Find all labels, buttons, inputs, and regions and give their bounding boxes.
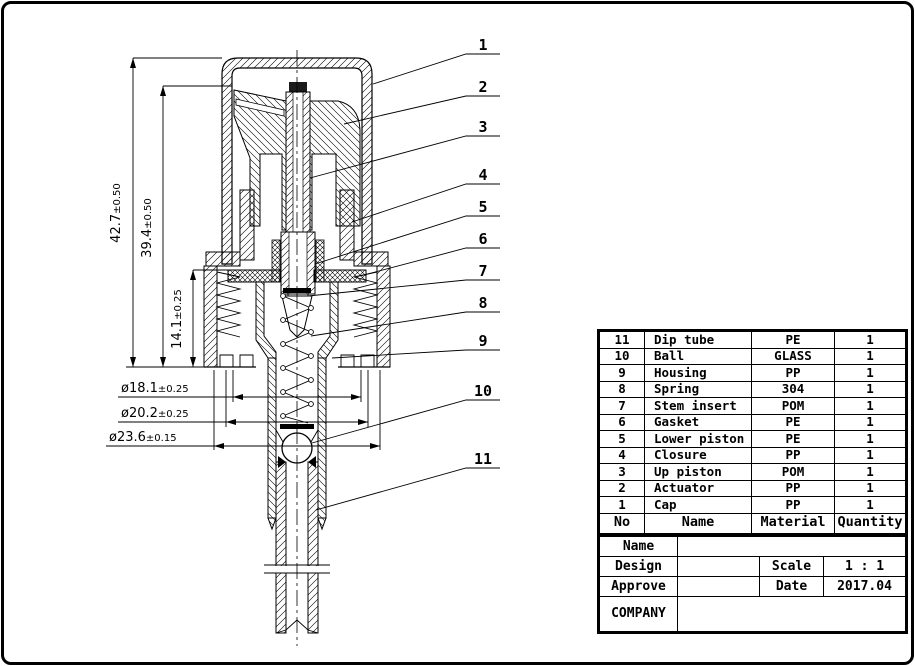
name-value: [678, 535, 907, 556]
parts-table: 11Dip tubePE1 10BallGLASS1 9HousingPP1 8…: [597, 329, 908, 536]
blueprint-page: 42.7±0.50 39.4±0.50 14.1±0.25 ø18.1±0.25: [0, 0, 915, 666]
callout-3: 3: [478, 118, 487, 136]
table-row: 2ActuatorPP1: [599, 480, 907, 497]
stem-plug: [289, 82, 307, 92]
callout-11: 11: [474, 450, 492, 468]
design-label: Design: [599, 556, 678, 576]
title-block-company-row: COMPANY: [599, 596, 907, 632]
title-block-approve-row: Approve Date 2017.04: [599, 576, 907, 596]
table-row: 4ClosurePP1: [599, 447, 907, 464]
title-block: Name Design Scale 1 : 1 Approve Date 201…: [597, 534, 908, 634]
approve-label: Approve: [599, 576, 678, 596]
name-label: Name: [599, 535, 678, 556]
table-row: 9HousingPP1: [599, 365, 907, 382]
bom-and-title-block: 11Dip tubePE1 10BallGLASS1 9HousingPP1 8…: [597, 329, 905, 634]
col-header-material: Material: [752, 513, 835, 534]
table-row: 11Dip tubePE1: [599, 331, 907, 349]
table-row: 3Up pistonPOM1: [599, 464, 907, 481]
table-row: 8Spring3041: [599, 381, 907, 398]
dim-dia-20-2: ø20.2±0.25: [121, 406, 189, 421]
table-row: 10BallGLASS1: [599, 348, 907, 365]
callout-1: 1: [478, 36, 487, 54]
company-value: [678, 596, 907, 632]
dim-dia-18-1: ø18.1±0.25: [121, 381, 189, 396]
callout-2: 2: [478, 78, 487, 96]
callout-6: 6: [478, 230, 487, 248]
callout-5: 5: [478, 198, 487, 216]
title-block-design-row: Design Scale 1 : 1: [599, 556, 907, 576]
table-row: 1CapPP1: [599, 497, 907, 514]
scale-value: 1 : 1: [824, 556, 907, 576]
dim-dia-23-6: ø23.6±0.15: [109, 430, 177, 445]
title-block-name-row: Name: [599, 535, 907, 556]
date-label: Date: [760, 576, 824, 596]
callout-9: 9: [478, 332, 487, 350]
callout-10: 10: [474, 382, 492, 400]
design-value: [678, 556, 760, 576]
callout-8: 8: [478, 294, 487, 312]
table-row: 6GasketPE1: [599, 414, 907, 431]
table-header-row: No Name Material Quantity: [599, 513, 907, 534]
scale-label: Scale: [760, 556, 824, 576]
approve-value: [678, 576, 760, 596]
callout-4: 4: [478, 166, 487, 184]
dim-14-1: 14.1±0.25: [170, 289, 185, 349]
col-header-quantity: Quantity: [835, 513, 907, 534]
date-value: 2017.04: [824, 576, 907, 596]
company-label: COMPANY: [599, 596, 678, 632]
callout-7: 7: [478, 262, 487, 280]
dim-42-7: 42.7±0.50: [109, 183, 124, 243]
up-piston-section: [281, 92, 315, 294]
table-row: 7Stem insertPOM1: [599, 398, 907, 415]
col-header-name: Name: [645, 513, 752, 534]
col-header-no: No: [599, 513, 645, 534]
dim-39-4: 39.4±0.50: [140, 198, 155, 258]
table-row: 5Lower pistonPE1: [599, 431, 907, 448]
